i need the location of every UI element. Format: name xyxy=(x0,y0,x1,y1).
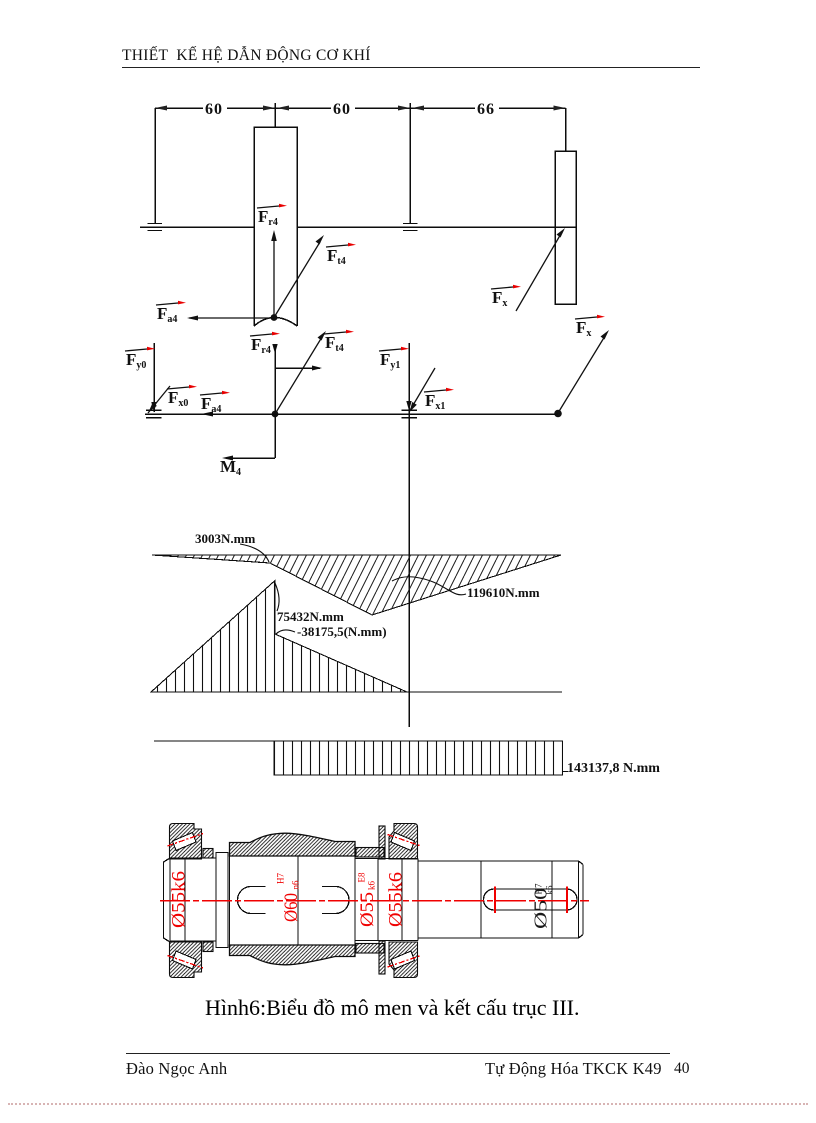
svg-text:Ø55k6: Ø55k6 xyxy=(169,871,190,928)
svg-text:Fx: Fx xyxy=(492,288,507,309)
svg-text:Ø60: Ø60 xyxy=(281,893,302,922)
svg-text:Fy0: Fy0 xyxy=(126,350,146,371)
svg-text:Fx: Fx xyxy=(576,318,591,339)
svg-text:3003N.mm: 3003N.mm xyxy=(195,531,255,546)
svg-text:M4: M4 xyxy=(220,457,241,478)
svg-text:143137,8 N.mm: 143137,8 N.mm xyxy=(567,761,660,776)
svg-text:Ø55k6: Ø55k6 xyxy=(386,872,407,927)
svg-text:H7: H7 xyxy=(276,873,286,884)
svg-text:Fx1: Fx1 xyxy=(425,391,445,412)
svg-text:Fr4: Fr4 xyxy=(258,207,278,228)
svg-text:Ø55: Ø55 xyxy=(357,892,378,927)
svg-text:66: 66 xyxy=(477,101,495,118)
svg-text:Ft4: Ft4 xyxy=(325,333,344,354)
svg-text:119610N.mm: 119610N.mm xyxy=(467,585,540,600)
svg-text:Fx0: Fx0 xyxy=(168,388,188,409)
svg-text:75432N.mm: 75432N.mm xyxy=(277,609,344,624)
svg-text:60: 60 xyxy=(333,101,351,118)
svg-text:k6: k6 xyxy=(545,885,555,895)
svg-text:-38175,5(N.mm): -38175,5(N.mm) xyxy=(297,624,387,639)
svg-text:Fa4: Fa4 xyxy=(157,304,177,325)
svg-text:60: 60 xyxy=(205,101,223,118)
svg-text:Ft4: Ft4 xyxy=(327,246,346,267)
svg-text:Fy1: Fy1 xyxy=(380,350,400,371)
svg-text:k6: k6 xyxy=(367,881,377,891)
svg-text:Fr4: Fr4 xyxy=(251,335,271,356)
svg-text:E8: E8 xyxy=(357,872,367,882)
svg-text:H7: H7 xyxy=(534,883,544,894)
svg-text:n6: n6 xyxy=(291,880,301,890)
svg-text:Fa4: Fa4 xyxy=(201,394,221,415)
